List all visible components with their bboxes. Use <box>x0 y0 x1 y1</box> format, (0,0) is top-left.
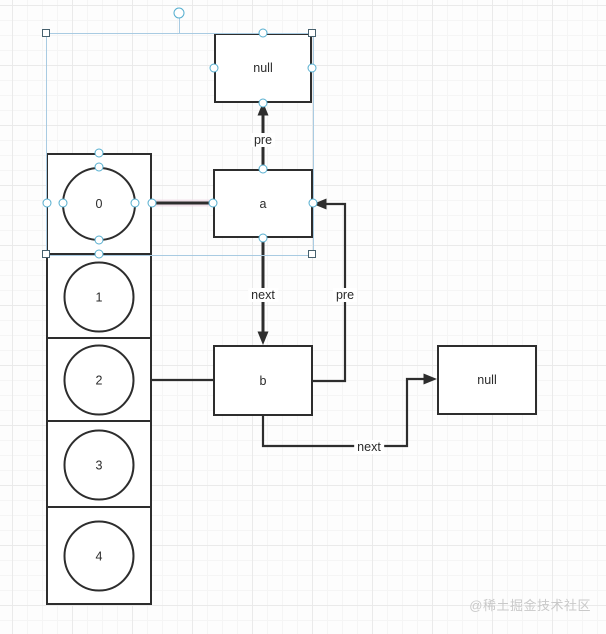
connection-point[interactable] <box>259 29 268 38</box>
selection-handle-nw[interactable] <box>42 29 50 37</box>
connection-point[interactable] <box>95 163 104 172</box>
array-value: 3 <box>96 458 103 472</box>
connection-point[interactable] <box>95 250 104 259</box>
edge-label-next-bottom[interactable]: next <box>354 440 384 454</box>
rotation-handle[interactable] <box>174 8 185 19</box>
arrowhead-down <box>258 332 269 346</box>
edge-label-next-mid[interactable]: next <box>248 288 278 302</box>
node-label: b <box>260 374 267 388</box>
node-b[interactable]: b <box>213 345 313 416</box>
selection-handle-sw[interactable] <box>42 250 50 258</box>
diagram-canvas[interactable]: 0 1 2 3 4 null a b null pre next pre nex… <box>0 0 606 634</box>
arrowhead-right <box>424 374 438 385</box>
array-value: 4 <box>96 549 103 563</box>
connection-point[interactable] <box>259 99 268 108</box>
connection-point[interactable] <box>210 64 219 73</box>
array-circle-3[interactable]: 3 <box>64 430 135 501</box>
watermark: @稀土掘金技术社区 <box>469 595 591 614</box>
array-value: 1 <box>96 290 103 304</box>
connection-point[interactable] <box>43 199 52 208</box>
array-circle-1[interactable]: 1 <box>64 262 135 333</box>
connection-point[interactable] <box>148 199 157 208</box>
connection-point[interactable] <box>209 199 218 208</box>
connection-point[interactable] <box>59 199 68 208</box>
connection-point[interactable] <box>308 64 317 73</box>
connection-point[interactable] <box>131 199 140 208</box>
connection-point[interactable] <box>95 236 104 245</box>
connection-point[interactable] <box>259 234 268 243</box>
array-value: 2 <box>96 373 103 387</box>
edge-label-pre-right[interactable]: pre <box>333 288 357 302</box>
array-circle-2[interactable]: 2 <box>64 345 135 416</box>
connection-point[interactable] <box>95 149 104 158</box>
node-null-right[interactable]: null <box>437 345 537 415</box>
selection-handle-ne[interactable] <box>308 29 316 37</box>
connection-point[interactable] <box>309 199 318 208</box>
node-label: null <box>477 373 496 387</box>
rotation-handle-stem <box>179 18 180 33</box>
edge-label-pre-top[interactable]: pre <box>251 133 275 147</box>
array-circle-4[interactable]: 4 <box>64 521 135 592</box>
selection-handle-se[interactable] <box>308 250 316 258</box>
connection-point[interactable] <box>259 165 268 174</box>
